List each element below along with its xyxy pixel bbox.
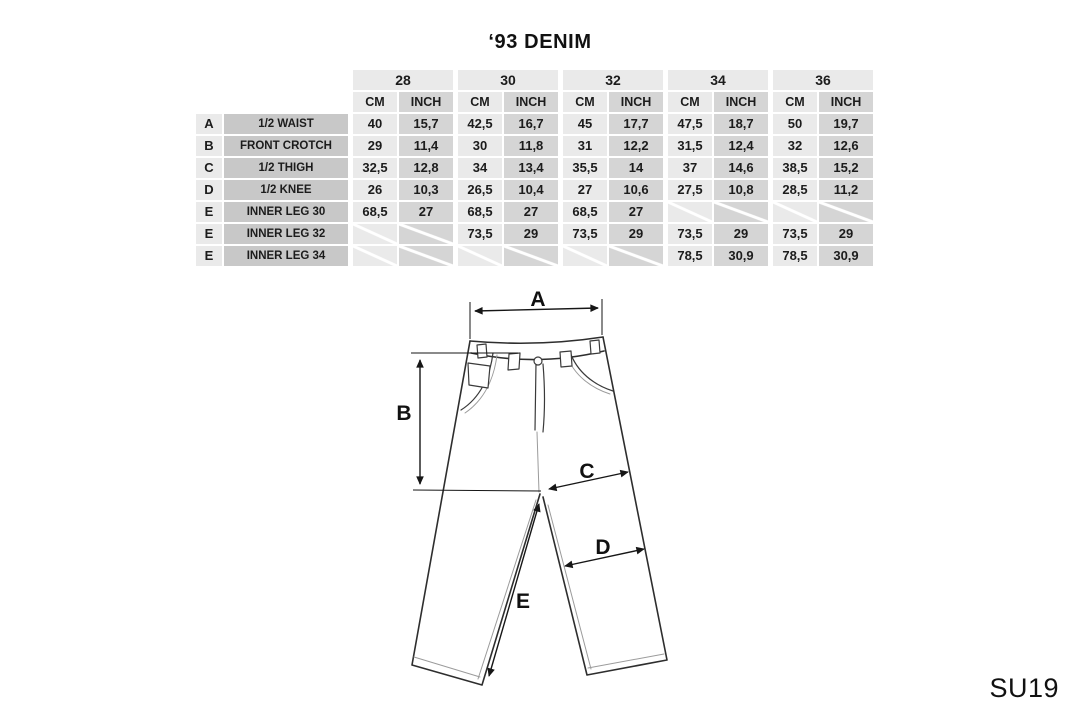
unit-header-inch: INCH [399,92,453,112]
size-guide-page: ‘93 DENIM 2830323436CMINCHCMINCHCMINCHCM… [0,0,1080,721]
empty-cell [819,202,873,222]
empty-cell [455,246,502,266]
measurement-row: EINNER LEG 3273,52973,52973,52973,529 [196,224,873,244]
unit-header-inch: INCH [504,92,558,112]
measurement-row: A1/2 WAIST4015,742,516,74517,747,518,750… [196,114,873,134]
unit-header-inch: INCH [714,92,768,112]
row-label: 1/2 WAIST [224,114,348,134]
row-letter: D [196,180,222,200]
value-cell: 27 [399,202,453,222]
empty-cell [504,246,558,266]
value-cell: 29 [504,224,558,244]
value-cell: 14,6 [714,158,768,178]
row-label: INNER LEG 34 [224,246,348,266]
belt-loop-right [560,351,572,367]
value-cell: 73,5 [560,224,607,244]
value-cell: 10,4 [504,180,558,200]
value-cell: 30,9 [819,246,873,266]
size-header-36: 36 [770,70,873,90]
empty-cell [399,224,453,244]
value-cell: 78,5 [665,246,712,266]
empty-cell [665,202,712,222]
label-c: C [579,460,594,483]
right-inseam-stitch [548,505,591,669]
value-cell: 10,3 [399,180,453,200]
size-header-32: 32 [560,70,663,90]
row-letter: C [196,158,222,178]
value-cell: 38,5 [770,158,817,178]
value-cell: 29 [819,224,873,244]
row-letter: A [196,114,222,134]
value-cell: 29 [609,224,663,244]
value-cell: 50 [770,114,817,134]
empty-cell [399,246,453,266]
size-header-34: 34 [665,70,768,90]
value-cell: 47,5 [665,114,712,134]
value-cell: 27 [504,202,558,222]
coin-pocket [468,363,490,388]
empty-cell [560,246,607,266]
belt-loop-far-left [477,344,487,358]
value-cell: 26 [350,180,397,200]
waist-button [534,357,542,365]
fly-seam [535,363,536,430]
unit-header-inch: INCH [609,92,663,112]
value-cell: 11,2 [819,180,873,200]
value-cell: 35,5 [560,158,607,178]
value-cell: 31,5 [665,136,712,156]
unit-header-inch: INCH [819,92,873,112]
value-cell: 34 [455,158,502,178]
row-letter: E [196,202,222,222]
empty-cell [770,202,817,222]
value-cell: 27 [609,202,663,222]
label-a: A [530,288,545,311]
value-cell: 73,5 [455,224,502,244]
value-cell: 73,5 [770,224,817,244]
right-hem-stitch [588,654,664,668]
size-chart-head: 2830323436CMINCHCMINCHCMINCHCMINCHCMINCH [196,70,873,112]
empty-cell [350,224,397,244]
value-cell: 31 [560,136,607,156]
label-d: D [595,536,610,559]
measurement-row: EINNER LEG 3478,530,978,530,9 [196,246,873,266]
jeans-outline-group [412,337,667,685]
value-cell: 73,5 [665,224,712,244]
value-cell: 13,4 [504,158,558,178]
season-code: SU19 [989,673,1059,704]
value-cell: 28,5 [770,180,817,200]
empty-cell [714,202,768,222]
value-cell: 68,5 [560,202,607,222]
fly-j-stitch [543,364,545,432]
value-cell: 18,7 [714,114,768,134]
b-reference-bottom [413,490,541,491]
page-title: ‘93 DENIM [0,31,1080,54]
value-cell: 29 [714,224,768,244]
unit-header-cm: CM [350,92,397,112]
value-cell: 37 [665,158,712,178]
value-cell: 30 [455,136,502,156]
value-cell: 12,8 [399,158,453,178]
dimension-arrows-group [411,299,644,676]
value-cell: 15,2 [819,158,873,178]
row-label: INNER LEG 30 [224,202,348,222]
value-cell: 32,5 [350,158,397,178]
value-cell: 11,4 [399,136,453,156]
left-hem-stitch [414,657,480,677]
value-cell: 14 [609,158,663,178]
size-header-28: 28 [350,70,453,90]
unit-header-cm: CM [560,92,607,112]
size-header-30: 30 [455,70,558,90]
label-b: B [396,402,411,425]
row-label: 1/2 THIGH [224,158,348,178]
row-label: INNER LEG 32 [224,224,348,244]
right-pocket-stitch [567,356,610,394]
row-letter: E [196,224,222,244]
measurement-row: BFRONT CROTCH2911,43011,83112,231,512,43… [196,136,873,156]
size-chart-body: A1/2 WAIST4015,742,516,74517,747,518,750… [196,114,873,266]
measurement-row: C1/2 THIGH32,512,83413,435,5143714,638,5… [196,158,873,178]
front-rise-seam [537,432,539,492]
value-cell: 17,7 [609,114,663,134]
value-cell: 12,4 [714,136,768,156]
unit-header-cm: CM [770,92,817,112]
jeans-details-group [414,340,664,679]
waist-top-edge [470,337,603,343]
row-letter: B [196,136,222,156]
value-cell: 27 [560,180,607,200]
value-cell: 10,8 [714,180,768,200]
value-cell: 15,7 [399,114,453,134]
row-label: 1/2 KNEE [224,180,348,200]
belt-loop-left [508,353,520,370]
left-leg-outline [412,341,540,685]
size-chart-table: 2830323436CMINCHCMINCHCMINCHCMINCHCMINCH… [194,68,875,268]
measurement-row: D1/2 KNEE2610,326,510,42710,627,510,828,… [196,180,873,200]
unit-header-cm: CM [665,92,712,112]
pants-diagram: A B C D E [385,283,785,703]
row-letter: E [196,246,222,266]
belt-loop-far-right [590,340,600,354]
value-cell: 26,5 [455,180,502,200]
value-cell: 16,7 [504,114,558,134]
value-cell: 30,9 [714,246,768,266]
value-cell: 68,5 [455,202,502,222]
table-corner [196,70,348,90]
value-cell: 11,8 [504,136,558,156]
row-label: FRONT CROTCH [224,136,348,156]
value-cell: 27,5 [665,180,712,200]
empty-cell [609,246,663,266]
arrow-e-inner-leg [489,504,539,676]
value-cell: 40 [350,114,397,134]
value-cell: 78,5 [770,246,817,266]
value-cell: 32 [770,136,817,156]
value-cell: 10,6 [609,180,663,200]
value-cell: 45 [560,114,607,134]
value-cell: 12,2 [609,136,663,156]
unit-header-cm: CM [455,92,502,112]
label-e: E [516,590,530,613]
table-corner [196,92,348,112]
value-cell: 29 [350,136,397,156]
value-cell: 19,7 [819,114,873,134]
value-cell: 12,6 [819,136,873,156]
value-cell: 42,5 [455,114,502,134]
empty-cell [350,246,397,266]
measurement-row: EINNER LEG 3068,52768,52768,527 [196,202,873,222]
value-cell: 68,5 [350,202,397,222]
